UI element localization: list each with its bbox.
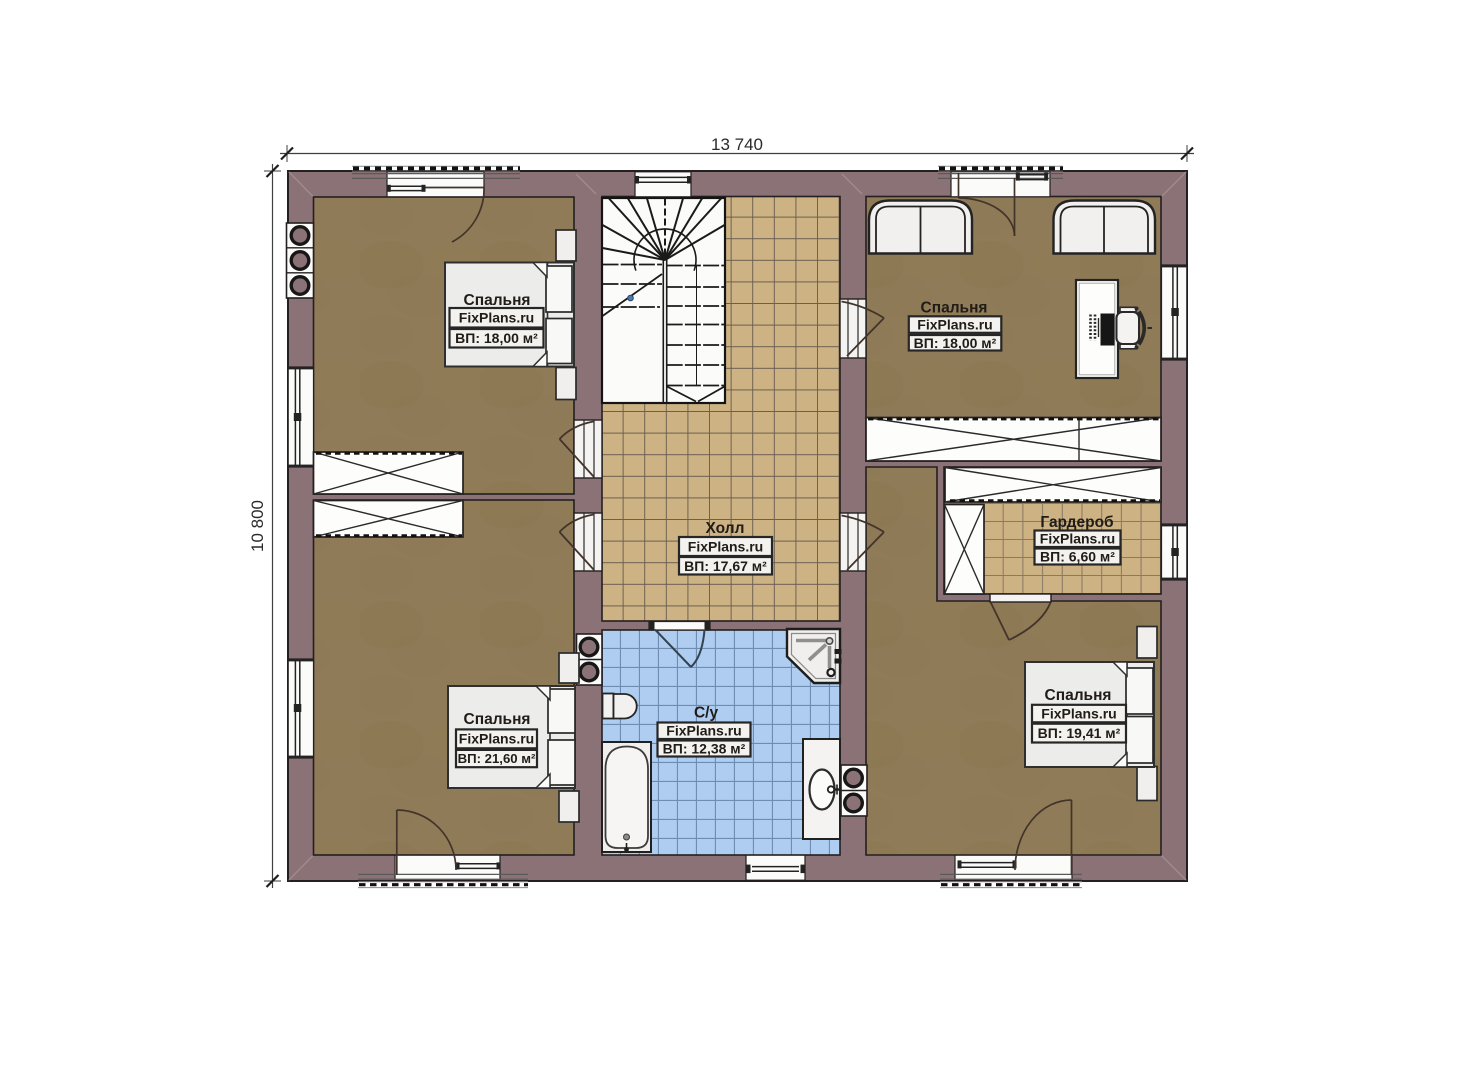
- svg-text:Спальня: Спальня: [1045, 687, 1112, 704]
- svg-text:Спальня: Спальня: [464, 711, 531, 728]
- svg-text:С/у: С/у: [694, 705, 719, 722]
- svg-text:Спальня: Спальня: [464, 292, 531, 309]
- svg-text:ВП: 17,67 м²: ВП: 17,67 м²: [684, 558, 767, 574]
- svg-text:10 800: 10 800: [248, 500, 267, 552]
- svg-text:ВП: 6,60 м²: ВП: 6,60 м²: [1040, 548, 1115, 564]
- svg-text:FixPlans.ru: FixPlans.ru: [1040, 531, 1115, 547]
- svg-text:FixPlans.ru: FixPlans.ru: [459, 310, 534, 326]
- svg-text:ВП: 19,41 м²: ВП: 19,41 м²: [1038, 725, 1121, 741]
- svg-text:Гардероб: Гардероб: [1040, 514, 1113, 531]
- svg-text:13 740: 13 740: [711, 135, 763, 154]
- svg-text:FixPlans.ru: FixPlans.ru: [688, 538, 763, 554]
- svg-text:ВП: 12,38 м²: ВП: 12,38 м²: [663, 740, 746, 756]
- svg-text:ВП: 18,00 м²: ВП: 18,00 м²: [455, 330, 538, 346]
- svg-text:FixPlans.ru: FixPlans.ru: [1041, 705, 1116, 721]
- svg-text:FixPlans.ru: FixPlans.ru: [459, 731, 534, 747]
- svg-text:ВП: 21,60 м²: ВП: 21,60 м²: [458, 751, 536, 766]
- svg-text:Спальня: Спальня: [921, 300, 988, 317]
- svg-text:FixPlans.ru: FixPlans.ru: [666, 723, 741, 739]
- svg-text:Холл: Холл: [706, 520, 745, 537]
- svg-text:FixPlans.ru: FixPlans.ru: [917, 317, 992, 333]
- svg-text:ВП: 18,00 м²: ВП: 18,00 м²: [914, 335, 997, 351]
